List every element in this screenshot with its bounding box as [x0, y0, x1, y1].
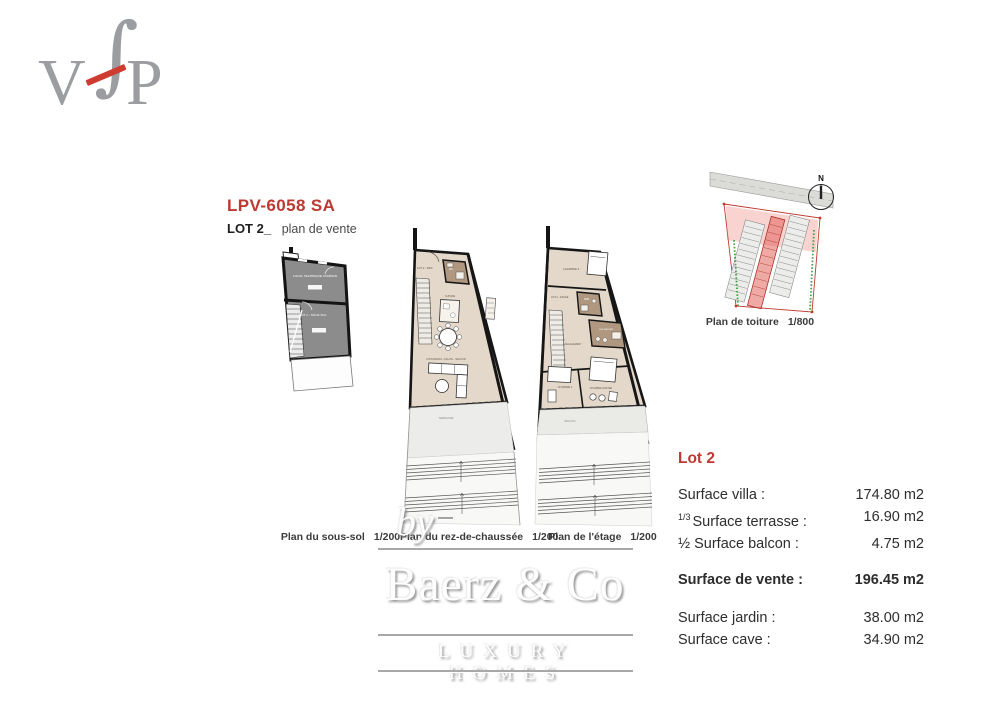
room-label-terrace: TERRASSE [438, 416, 453, 420]
surface-label: Surface villa : [678, 484, 765, 506]
surface-value: 34.90 m2 [864, 629, 924, 651]
roof-site-plan: N [700, 160, 845, 335]
north-label: N [818, 174, 824, 183]
pouf [590, 394, 596, 400]
bathroom [577, 292, 602, 316]
sous-sol-floorplan: LOCAL TECHNIQUE COMMUN LOT 2 - SOUS SOL [250, 244, 365, 399]
caption-text: Plan de l'étage [548, 531, 621, 543]
surface-row-balcon: ½ Surface balcon : 4.75 m2 [678, 533, 924, 555]
caption-roof: Plan de toiture1/800 [700, 316, 820, 328]
dim-badge [312, 328, 326, 333]
logo-letter-v: V [38, 50, 86, 116]
surface-row-villa: Surface villa : 174.80 m2 [678, 484, 924, 506]
surface-label: Surface jardin : [678, 607, 776, 629]
caption-scale: 1/800 [788, 316, 814, 328]
etage-floorplan: CHAMBRE 3 LOT 2 - ETAGE SDB SDB MASTER D… [533, 220, 663, 535]
room-label-bathroom: SDB [584, 298, 589, 301]
surface-value: 196.45 m2 [855, 569, 924, 591]
balcony [537, 406, 648, 435]
room-label-technical: LOCAL TECHNIQUE COMMUN [293, 274, 337, 278]
dim-badge [308, 285, 322, 290]
caption-scale: 1/200 [630, 531, 656, 543]
caption-text: Plan du sous-sol [281, 531, 365, 543]
fixture [603, 338, 607, 342]
room-label-unit: LOT 2 - ETAGE [551, 296, 569, 299]
bed-master [589, 357, 617, 382]
caption-text: Plan du rez-de-chaussée [400, 531, 523, 543]
pouf [599, 395, 605, 401]
wall-tick [546, 226, 550, 248]
fixture [447, 263, 453, 267]
watermark-rule-bottom [378, 670, 633, 672]
vfp-logo: V ∫ P [36, 26, 186, 131]
wall-checker [318, 262, 327, 263]
kitchen-counter [485, 298, 495, 320]
fixture [581, 305, 588, 311]
fraction-prefix: 1/3 [678, 512, 691, 522]
room-label-bedroom2: CHAMBRE 2 [558, 386, 573, 389]
room-label-unit: LOT 2 - RDC [417, 266, 433, 270]
surface-table-title: Lot 2 [678, 450, 924, 468]
fixture [596, 337, 600, 341]
wall-tick [413, 228, 417, 250]
surface-label: Surface de vente : [678, 569, 803, 591]
room-label-cellar: LOT 2 - SOUS SOL [299, 313, 326, 317]
surface-label: ½ Surface balcon : [678, 533, 799, 555]
wall-checker [298, 260, 307, 261]
rdc-floorplan: WC LOT 2 - RDC CUISINE COIN REPAS / SALO… [398, 220, 528, 535]
terrace [407, 402, 514, 458]
surface-value: 16.90 m2 [864, 506, 924, 533]
watermark-rule-middle [378, 634, 633, 636]
room-label-hall: DEGAGEMENT [564, 343, 582, 346]
fixture [456, 272, 464, 279]
fixture [612, 332, 621, 339]
surface-value: 38.00 m2 [864, 607, 924, 629]
plan-de-vente-label: plan de vente [282, 222, 357, 236]
lot-line: LOT 2_ plan de vente [227, 221, 357, 236]
caption-sous-sol: Plan du sous-sol1/200 [268, 531, 413, 543]
caption-text: Plan de toiture [706, 316, 779, 328]
surface-value: 174.80 m2 [855, 484, 924, 506]
watermark-rule-top [378, 548, 633, 550]
bed-3 [587, 251, 608, 276]
lower-terrace-edge [291, 356, 353, 391]
surface-value: 4.75 m2 [872, 533, 924, 555]
reference-title: LPV-6058 SA [227, 196, 335, 216]
surface-label: 1/3Surface terrasse : [678, 506, 807, 533]
surface-row-cave: Surface cave : 34.90 m2 [678, 629, 924, 651]
plan-sheet: V ∫ P LPV-6058 SA LOT 2_ plan de vente L… [0, 0, 1000, 708]
bed-2 [548, 366, 572, 382]
caption-scale: 1/200 [374, 531, 400, 543]
room-label-wc: WC [449, 268, 453, 271]
surface-label: Surface cave : [678, 629, 771, 651]
room-label-kitchen: CUISINE [445, 294, 456, 298]
room-label-balcony: BALCON [565, 419, 576, 423]
surface-row-terrasse: 1/3Surface terrasse : 16.90 m2 [678, 506, 924, 533]
surface-extra-block: Surface jardin : 38.00 m2 Surface cave :… [678, 607, 924, 651]
dresser [608, 392, 617, 402]
dining-table [440, 329, 457, 346]
watermark-tagline: LUXURY HOMES [375, 641, 639, 685]
logo-letter-p: P [126, 50, 163, 116]
room-label-master-bathroom: SDB MASTER [599, 328, 614, 331]
garden-area [535, 432, 652, 526]
surface-row-jardin: Surface jardin : 38.00 m2 [678, 607, 924, 629]
surface-row-total: Surface de vente : 196.45 m2 [678, 569, 924, 591]
lot-number: LOT 2_ [227, 221, 271, 236]
surface-table: Lot 2 Surface villa : 174.80 m2 1/3Surfa… [678, 450, 924, 651]
room-label-living: COIN REPAS / SALON - SEJOUR [426, 357, 466, 361]
room-label-master: CHAMBRE MASTER [590, 387, 613, 390]
room-label-bedroom3: CHAMBRE 3 [563, 267, 580, 271]
fixture [592, 299, 596, 303]
kitchen-island [439, 300, 459, 323]
caption-etage: Plan de l'étage1/200 [545, 531, 660, 543]
road-centerline [710, 179, 833, 201]
caption-rdc: Plan du rez-de-chaussée1/200 [400, 531, 550, 543]
coffee-table [436, 380, 449, 393]
watermark-brand: Baerz & Co [375, 557, 635, 612]
desk [548, 390, 556, 402]
